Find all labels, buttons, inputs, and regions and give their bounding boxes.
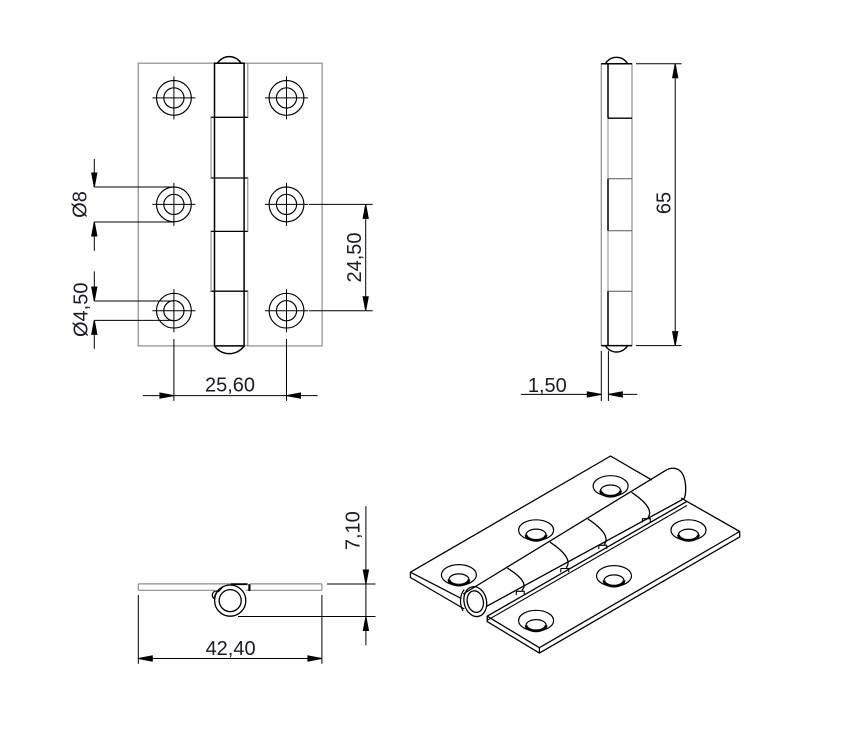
svg-text:24,50: 24,50 bbox=[344, 232, 366, 282]
svg-text:65: 65 bbox=[653, 192, 675, 214]
svg-text:7,10: 7,10 bbox=[343, 511, 365, 550]
svg-text:25,60: 25,60 bbox=[205, 375, 255, 397]
svg-text:Ø4,50: Ø4,50 bbox=[71, 283, 93, 337]
svg-text:Ø8: Ø8 bbox=[70, 191, 92, 218]
svg-text:42,40: 42,40 bbox=[206, 638, 256, 660]
svg-text:1,50: 1,50 bbox=[528, 375, 567, 397]
